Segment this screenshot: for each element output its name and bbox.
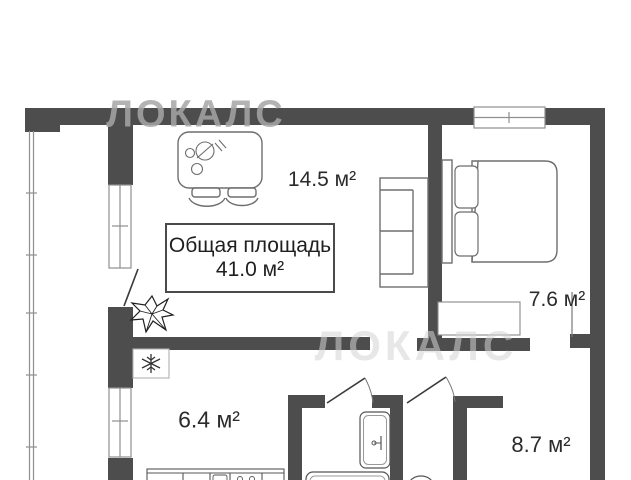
wall-toilet-right: [453, 408, 467, 480]
total-area-title: Общая площадь: [169, 234, 331, 258]
bed-headboard: [442, 160, 452, 263]
total-area-box: Общая площадь 41.0 м²: [165, 223, 335, 293]
toilet: [409, 476, 433, 480]
plant-icon: [131, 296, 173, 332]
total-area-value: 41.0 м²: [216, 258, 284, 282]
kitchen-area-label: 6.4 м²: [178, 407, 240, 434]
bed-pillow: [455, 166, 478, 208]
floor-plan: ЛОКАЛС ЛОКАЛС 14.5 м² 7.6 м² 6.4 м² 8.7 …: [0, 0, 631, 480]
chair: [189, 188, 225, 206]
dining-table: [178, 132, 262, 188]
wall-kitchen-left-upper: [108, 350, 133, 388]
living-room-window: [109, 185, 131, 268]
wall-bath-toilet-divider: [390, 408, 403, 480]
wall-bath-toilet-top: [372, 395, 403, 408]
bedroom-area-label: 7.6 м²: [529, 288, 585, 312]
watermark-middle: ЛОКАЛС: [315, 322, 517, 370]
wall-kitchen-left-lower: [108, 458, 133, 480]
toilet-door-leaf: [407, 377, 446, 403]
bed-blanket: [472, 161, 557, 262]
wall-left-mid: [108, 307, 133, 337]
living-room-area-label: 14.5 м²: [288, 168, 356, 192]
sofa: [380, 178, 428, 287]
bathroom-door-arc: [365, 378, 373, 403]
plate-icon: [192, 164, 203, 175]
watermark-top: ЛОКАЛС: [106, 94, 285, 137]
bathroom-door-leaf: [327, 378, 365, 403]
double-bed: [442, 160, 557, 263]
bathtub: [306, 472, 389, 480]
stove-burner: [250, 477, 255, 480]
balcony-glazing: [26, 131, 37, 480]
plate-icon: [186, 149, 195, 158]
bed-pillow: [455, 212, 478, 256]
kitchen-counter: [147, 469, 284, 480]
wall-right: [590, 108, 605, 480]
bedroom-window: [474, 107, 545, 128]
fridge: [133, 349, 169, 378]
wall-bedroom-door-stub: [570, 334, 590, 348]
wall-bathroom-top-left: [288, 395, 325, 408]
kitchen-sink: [213, 475, 227, 480]
stove-burner: [238, 477, 243, 480]
kitchen-window: [109, 388, 131, 457]
balcony-door-leaf: [124, 269, 138, 306]
hallway-area-label: 8.7 м²: [511, 432, 570, 458]
chair: [226, 188, 258, 206]
wall-toilet-top-right: [453, 396, 503, 408]
washbasin: [360, 412, 390, 468]
